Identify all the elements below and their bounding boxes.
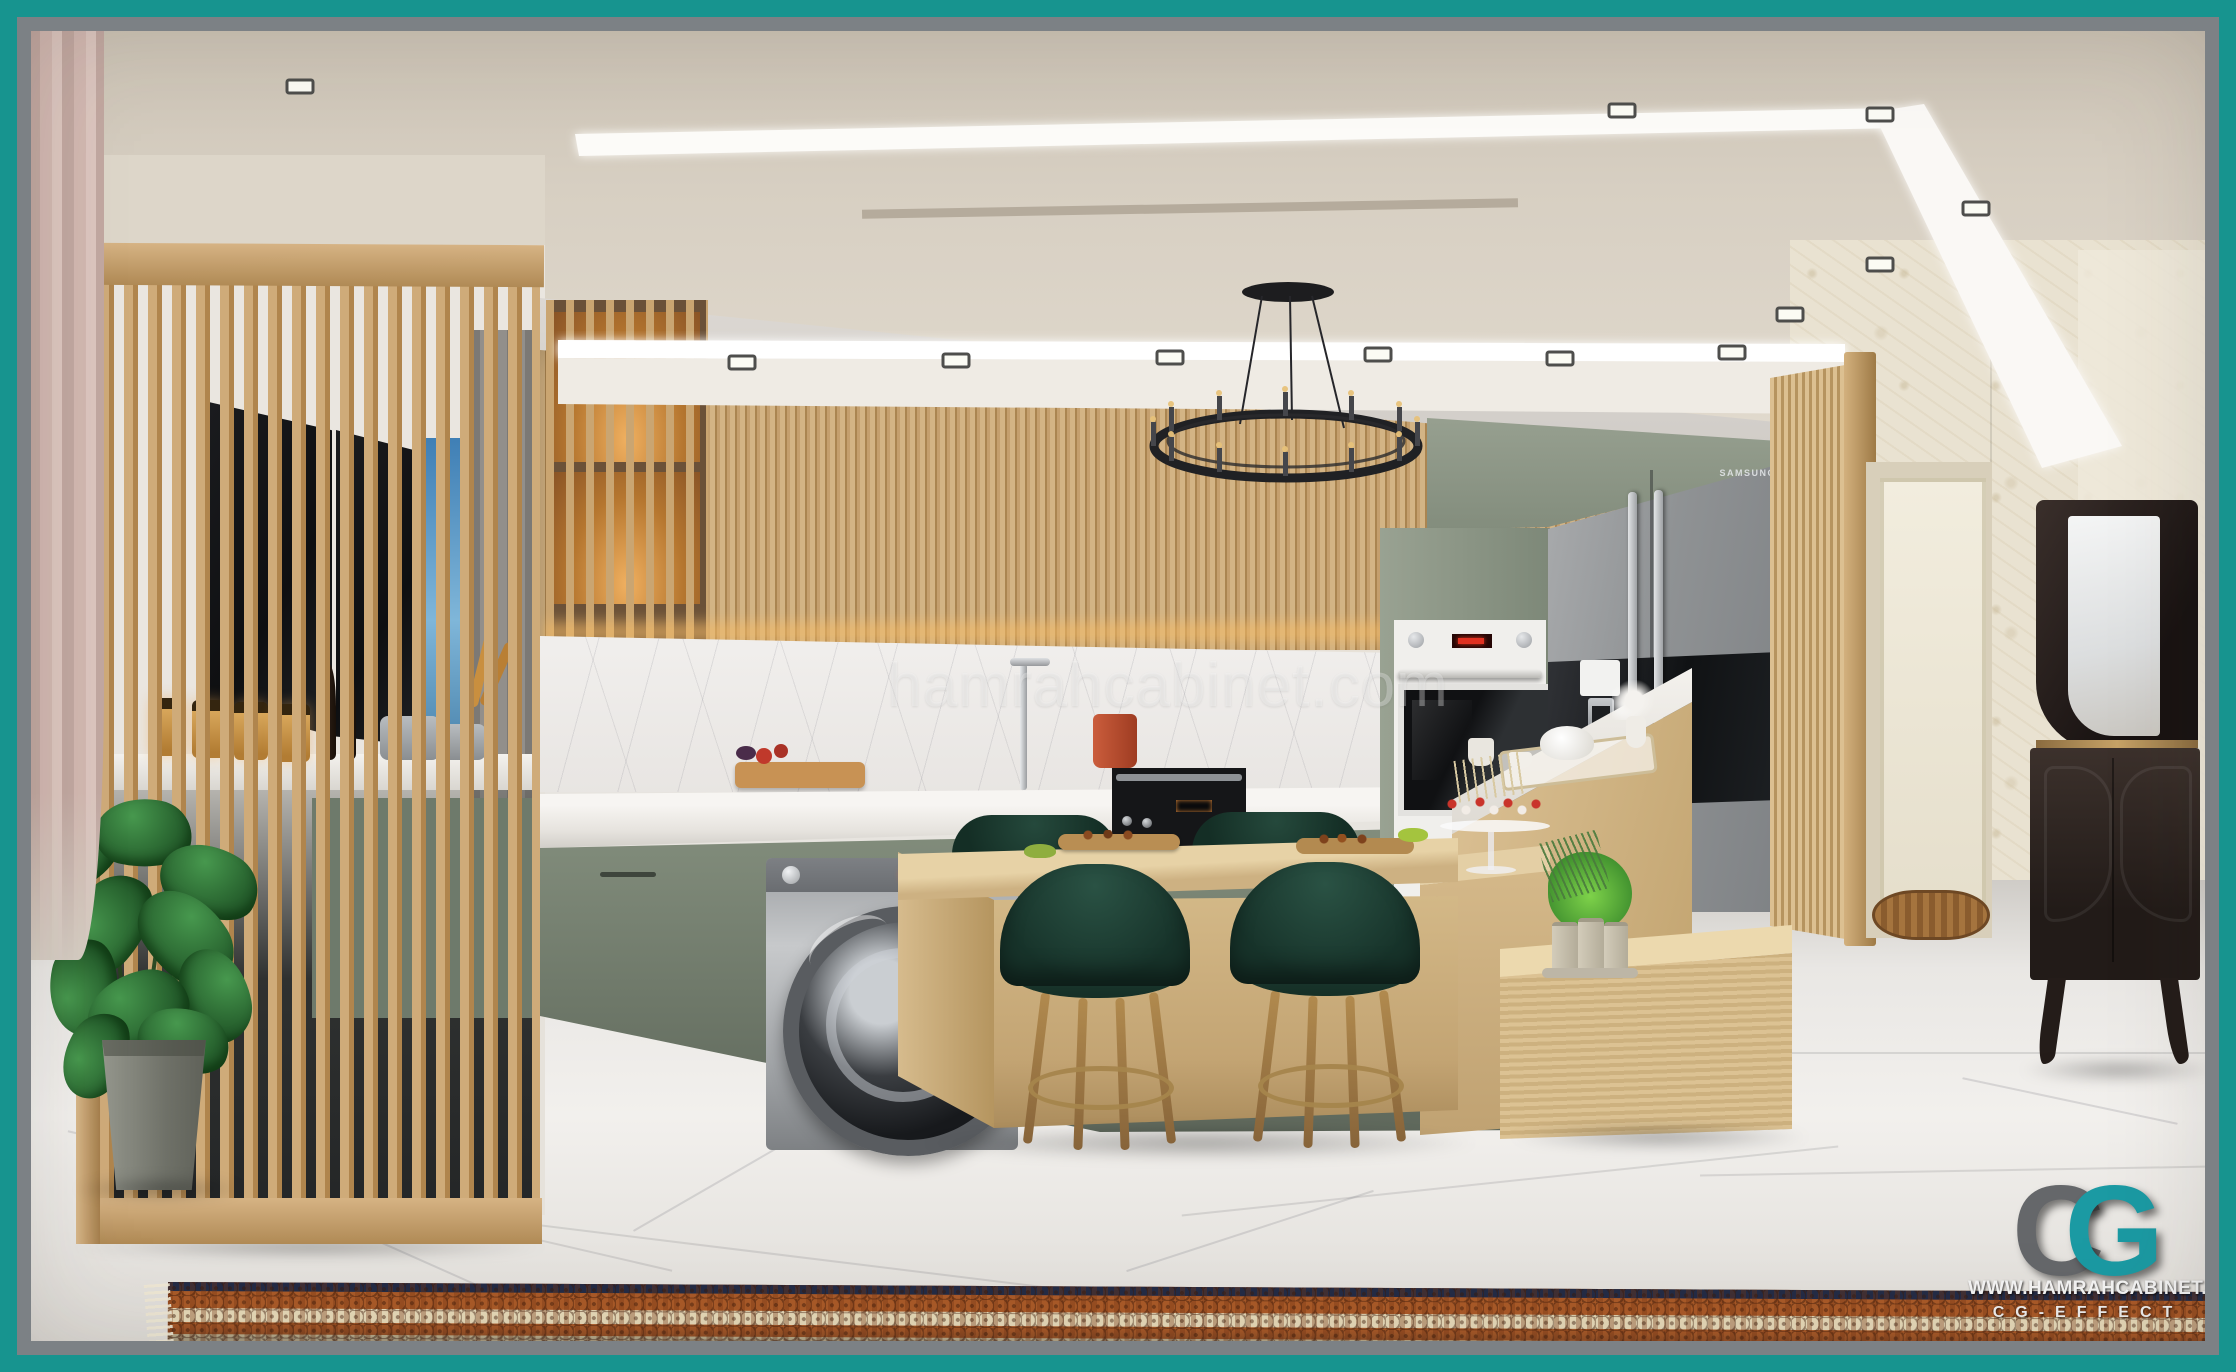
stool-footrest [1028,1066,1174,1110]
ring-chandelier [1100,260,1500,520]
oven-dial [1516,632,1532,648]
terracotta-pot [1093,714,1137,768]
curtain [18,28,104,960]
vanity-gold-trim [2036,740,2198,748]
vanity-door-seam [2112,758,2114,962]
oven-dial [1408,632,1424,648]
stool-footrest [1258,1064,1404,1108]
plant-shadow [74,1176,244,1202]
wood-bench-step [1500,951,1792,1139]
herb-pot [1604,922,1628,974]
hallway-door-panel [1880,478,1986,926]
appetizers [1316,834,1380,844]
vanity-shadow [2020,1058,2216,1082]
partition-bottom-rail [98,1198,542,1244]
interior-render: SAMSUNG [0,0,2236,1372]
flower-vase [1626,716,1646,748]
watermark: hamrahcabinet.com [828,650,1508,721]
logo-studio-name: CG-EFFECT [1968,1304,2208,1322]
floor-grout-line [1790,1052,2210,1054]
logo-letters: CG [1968,1168,2208,1296]
partition-top-rail [88,243,544,287]
logo-website: WWW.HAMRAHCABINET.COM [1968,1278,2208,1300]
persian-rug [168,1282,2208,1366]
oven-clock-digits [1458,638,1484,644]
teapot [1540,726,1594,760]
green-bowl [1398,828,1428,842]
cutting-board [735,762,865,788]
washer-dial [782,866,800,884]
herb-tray [1542,968,1638,978]
flower-bouquet [1612,680,1656,720]
range-knob [1122,816,1132,826]
tomato [774,744,788,758]
marshmallow-skewers [1444,796,1544,822]
tomato [756,748,772,764]
range-handle [1116,774,1242,781]
range-display [1176,800,1212,812]
chandelier-candles [1151,392,1420,476]
plant-pot-rim [95,1040,213,1056]
doormat [1872,890,1990,940]
bench-shadow [1510,1124,1810,1150]
studio-logo: CG WWW.HAMRAHCABINET.COM CG-EFFECT [1968,1168,2208,1322]
appetizers [1078,830,1148,840]
dessert-stand-base [1466,866,1516,874]
green-bowl [1024,844,1056,858]
eggplant [736,746,756,760]
range-knob [1142,818,1152,828]
dessert-stand-stem [1488,832,1494,870]
cabinet-handle [600,872,656,877]
rug-fringe [144,1283,175,1351]
vanity-mirror-glass [2068,516,2160,736]
